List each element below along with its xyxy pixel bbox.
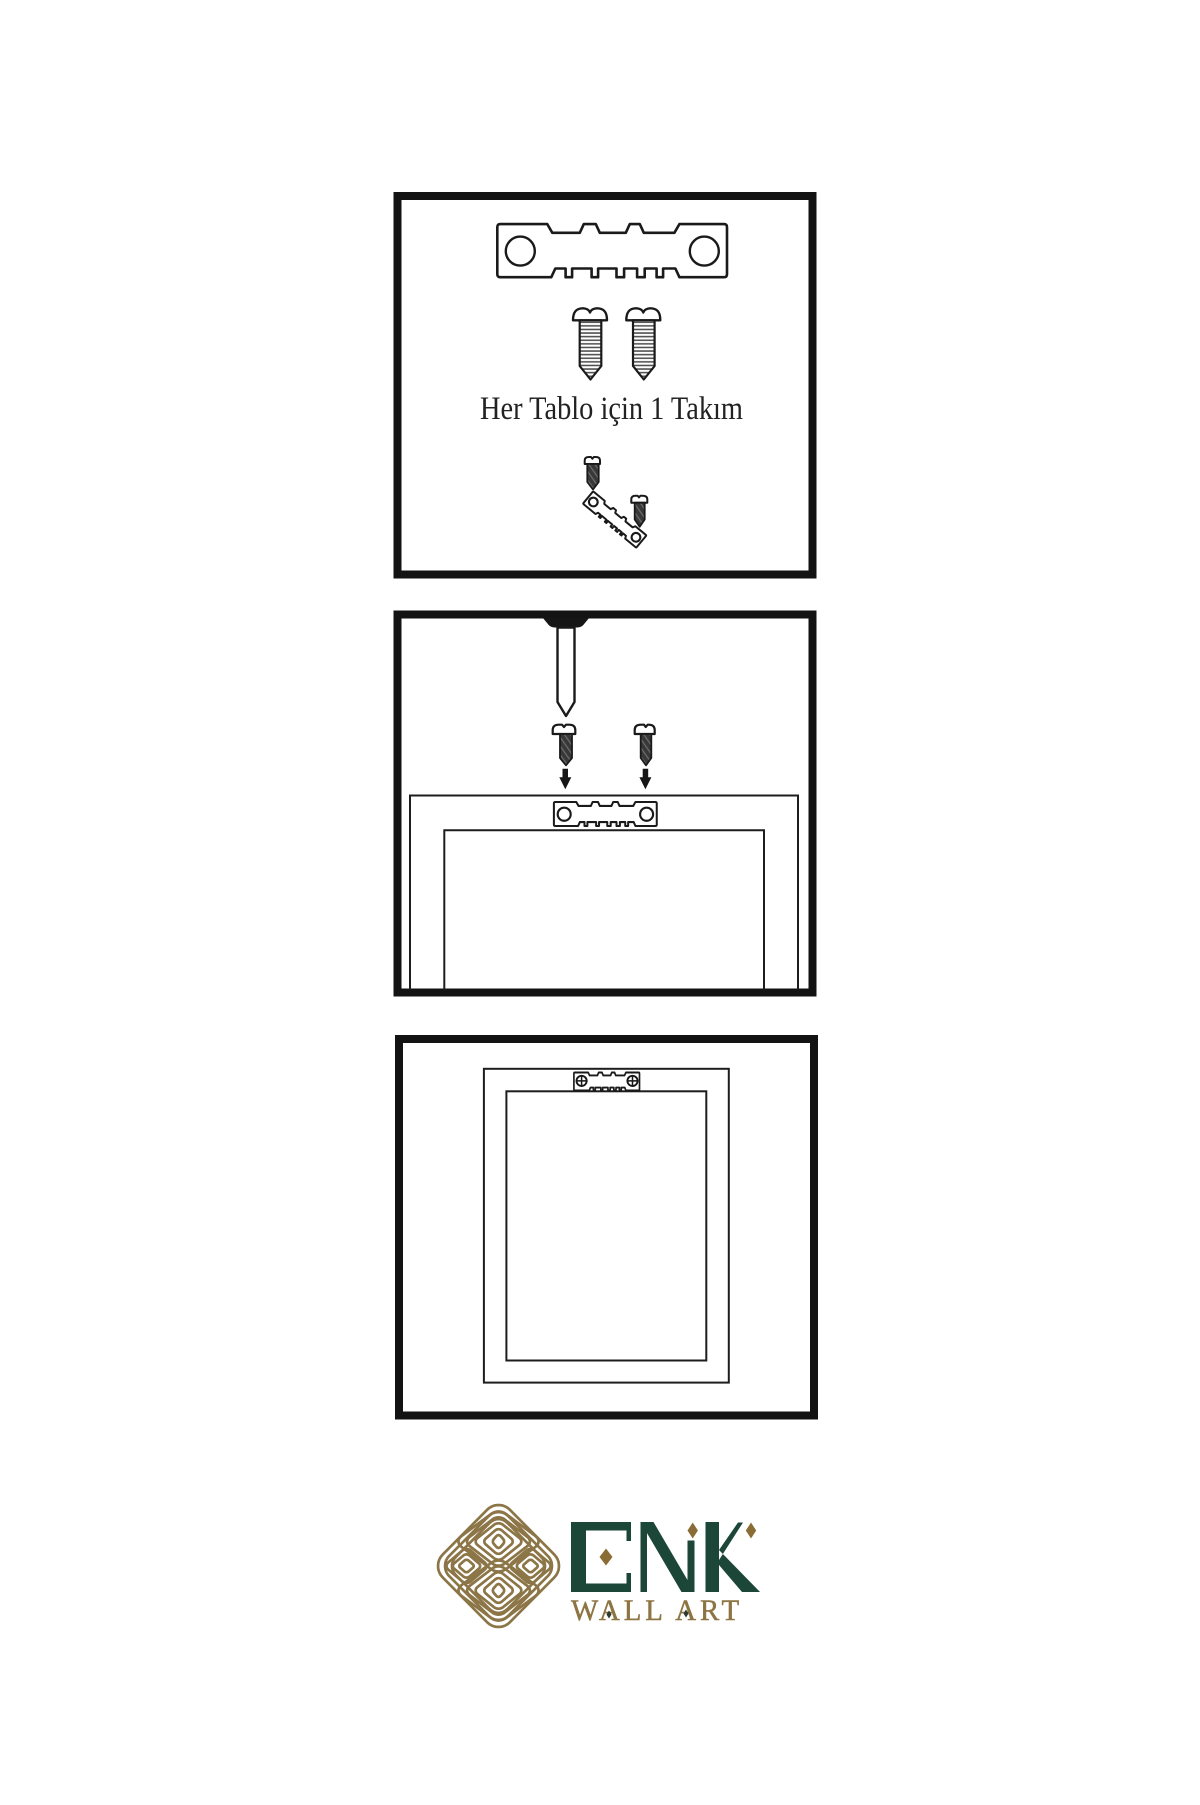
svg-text:Her Tablo için 1 Takım: Her Tablo için 1 Takım	[480, 391, 743, 427]
svg-text:WALL ART: WALL ART	[571, 1595, 743, 1627]
